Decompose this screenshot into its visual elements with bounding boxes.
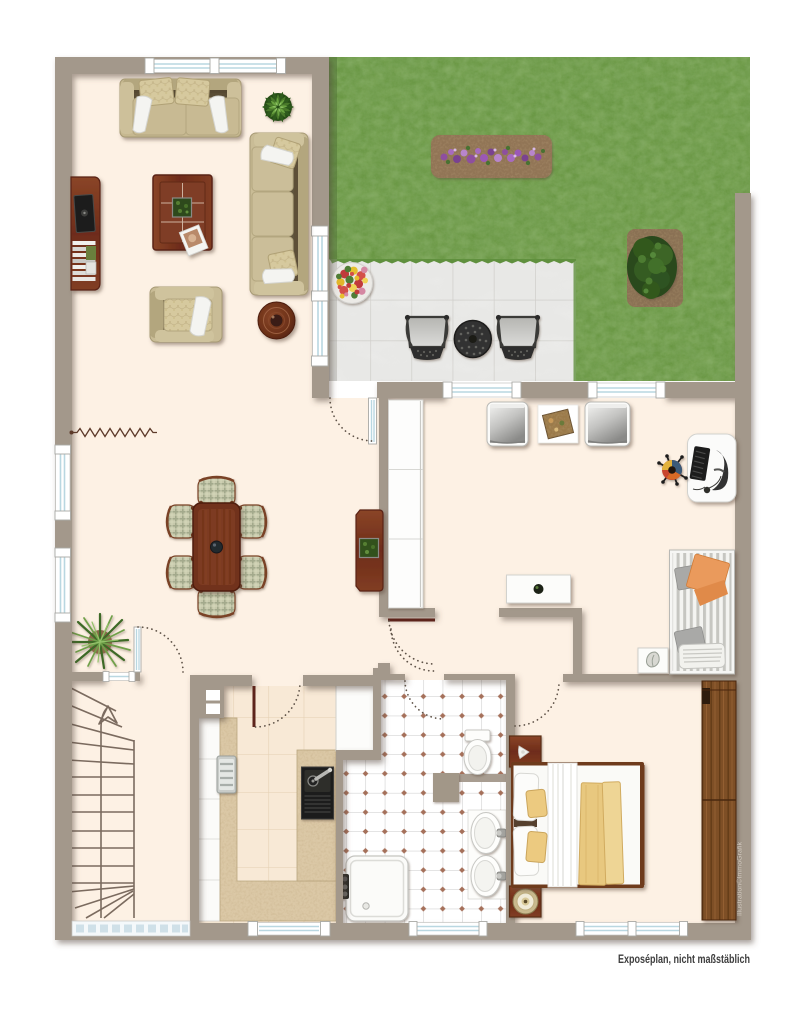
svg-text:Illustration©ImmoGrafik: Illustration©ImmoGrafik (736, 841, 744, 916)
svg-text:Exposéplan, nicht maßstäblich: Exposéplan, nicht maßstäblich (618, 952, 750, 966)
